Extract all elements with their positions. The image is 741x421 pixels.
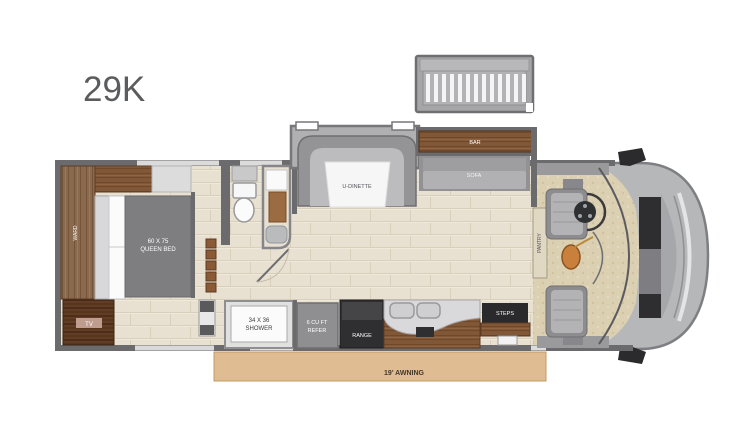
svg-text:19' AWNING: 19' AWNING — [384, 370, 424, 377]
svg-text:BAR: BAR — [469, 140, 480, 146]
svg-text:34 X 36: 34 X 36 — [249, 318, 270, 324]
svg-text:SOFA: SOFA — [467, 173, 482, 179]
svg-text:TV: TV — [85, 322, 93, 328]
svg-text:SHOWER: SHOWER — [246, 326, 274, 332]
svg-text:QUEEN BED: QUEEN BED — [140, 247, 176, 253]
svg-text:60 X 75: 60 X 75 — [148, 239, 169, 245]
svg-text:REFER: REFER — [308, 328, 327, 334]
svg-text:RANGE: RANGE — [352, 333, 372, 339]
svg-text:29K: 29K — [83, 70, 145, 109]
svg-text:WARD: WARD — [73, 225, 79, 240]
svg-text:PANTRY: PANTRY — [537, 232, 543, 252]
svg-text:U-DINETTE: U-DINETTE — [342, 184, 372, 190]
svg-text:6 CU FT: 6 CU FT — [307, 320, 328, 326]
svg-text:STEPS: STEPS — [496, 311, 514, 317]
